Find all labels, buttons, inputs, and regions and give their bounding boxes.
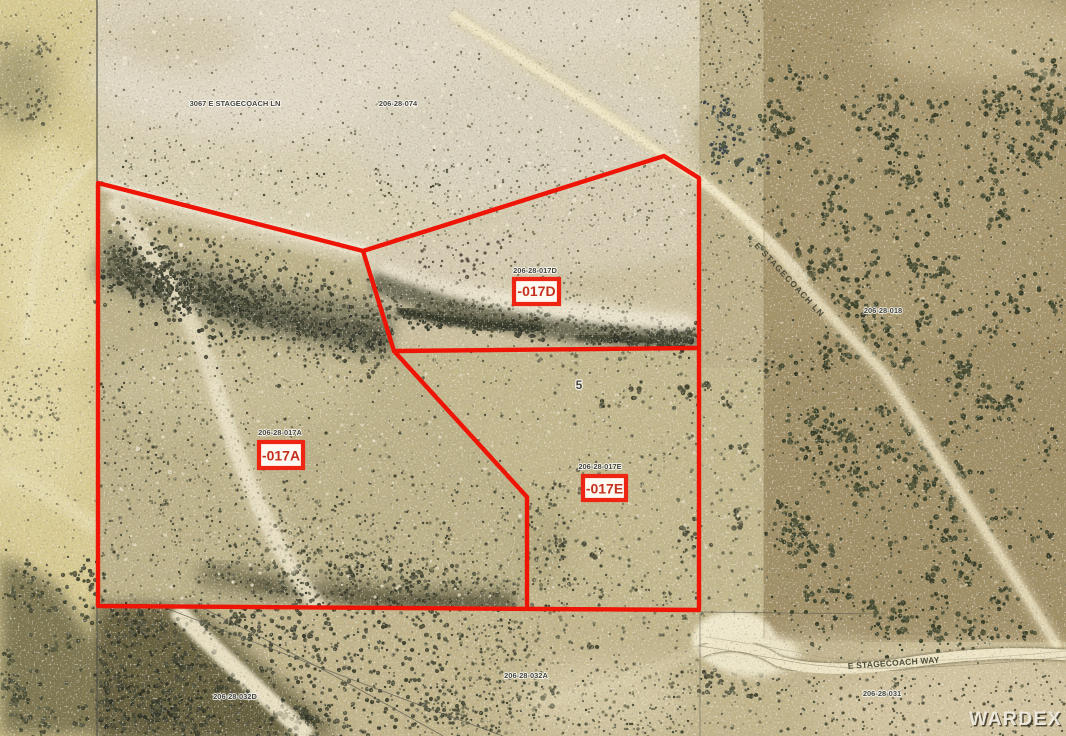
svg-text:5: 5 — [576, 378, 583, 392]
svg-text:-017D: -017D — [517, 283, 555, 299]
svg-text:206-28-017A: 206-28-017A — [258, 428, 302, 437]
svg-text:-017A: -017A — [262, 448, 300, 464]
svg-text:206-28-018: 206-28-018 — [864, 306, 902, 315]
svg-text:206-28-017D: 206-28-017D — [513, 266, 557, 275]
svg-text:206-28-031: 206-28-031 — [863, 689, 901, 698]
svg-text:206-28-032D: 206-28-032D — [213, 692, 257, 701]
svg-text:-017E: -017E — [586, 481, 623, 497]
svg-text:206-28-017E: 206-28-017E — [578, 462, 621, 471]
svg-text:206-28-032A: 206-28-032A — [504, 671, 548, 680]
svg-text:206-28-074: 206-28-074 — [379, 99, 418, 108]
svg-text:3067 E STAGECOACH LN: 3067 E STAGECOACH LN — [190, 99, 281, 108]
svg-text:WARDEX: WARDEX — [969, 708, 1062, 730]
